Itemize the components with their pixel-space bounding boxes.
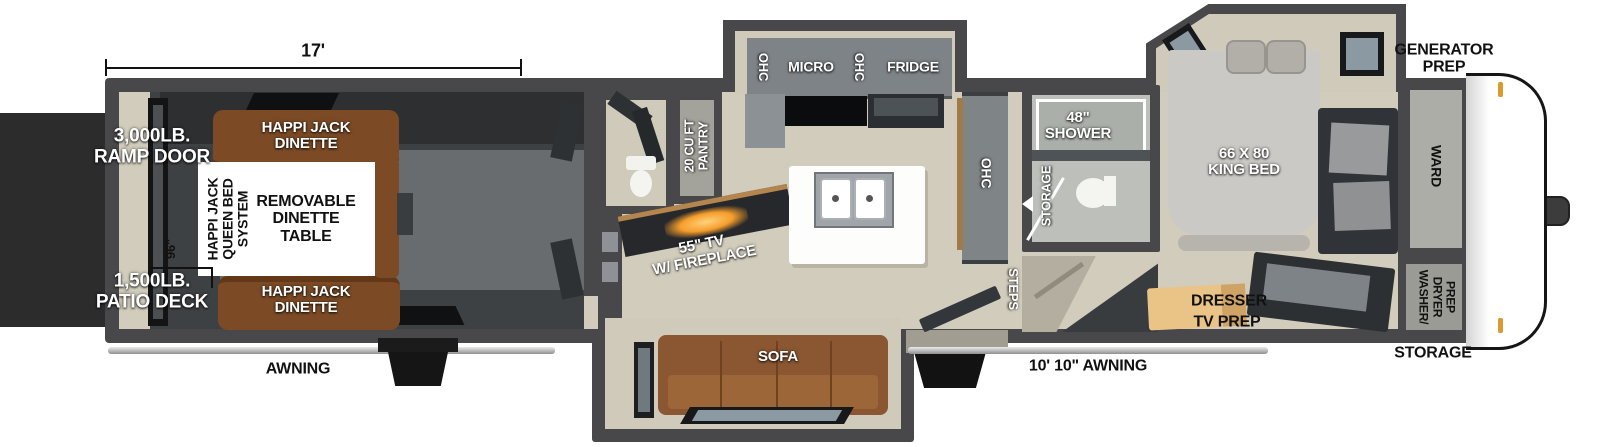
- ward-label: WARD: [1428, 145, 1443, 187]
- bed-pillow-1: [1226, 40, 1266, 74]
- removable-table-label: REMOVABLE DINETTE TABLE: [256, 193, 355, 245]
- sofa-label: SOFA: [758, 349, 798, 365]
- fridge-base: [868, 94, 944, 128]
- awning-main-label: 10' 10" AWNING: [1029, 357, 1147, 374]
- ramp-door-label: 3,000LB. RAMP DOOR: [94, 126, 210, 167]
- sink-bowl-left: [820, 178, 852, 220]
- slide-window-bottom-glass: [692, 410, 842, 421]
- garage-living-wall: [584, 92, 598, 296]
- kitchen-counter-left: [745, 94, 785, 148]
- front-cap: [1466, 73, 1547, 350]
- washer-dryer-label-3: PREP: [1444, 281, 1457, 313]
- stabilizer-bar: [378, 338, 458, 352]
- king-bed: [1168, 50, 1320, 235]
- kitchen-micro-label: MICRO: [788, 59, 834, 74]
- dim-17-label: 17': [301, 41, 325, 60]
- ohc-cabinet-wood-edge: [957, 98, 963, 250]
- kitchen-fridge-label: FRIDGE: [887, 59, 939, 74]
- entry-step-box: [914, 352, 986, 388]
- marker-light-top: [1498, 82, 1503, 97]
- queen-bed-system-label: HAPPI JACK QUEEN BED SYSTEM: [205, 178, 250, 261]
- pantry-label: 20 CU FT PANTRY: [684, 120, 711, 173]
- sink-drain-right: [866, 195, 873, 202]
- dim-96-label: 96": [164, 239, 178, 259]
- washer-dryer-label-2: DRYER: [1431, 277, 1444, 318]
- tv-console-top: [1263, 263, 1371, 311]
- awning-main-bar: [908, 347, 1268, 354]
- toilet-tank: [626, 156, 656, 170]
- garage-roof-vent-top: [246, 93, 339, 110]
- dim-17-tick-left: [105, 59, 107, 76]
- kitchen-ohc-left-label: OHC: [756, 53, 770, 81]
- sofa-seam-1: [720, 341, 722, 407]
- washer-dryer-label-1: WASHER/: [1417, 270, 1430, 325]
- steps-label: STEPS: [1006, 268, 1020, 310]
- dinette-bottom-label: HAPPI JACK DINETTE: [262, 284, 351, 316]
- sofa-seat: [668, 375, 878, 409]
- fifth-wheel-floorplan: 3,000LB. RAMP DOOR 1,500LB. PATIO DECK 1…: [0, 0, 1600, 447]
- sofa-seam-3: [830, 341, 832, 407]
- cooktop: [785, 96, 867, 126]
- side-wall-window-2: [602, 262, 618, 282]
- dim-96-tick: [211, 267, 213, 288]
- bed-pillow-2: [1266, 40, 1306, 74]
- dinette-top-label: HAPPI JACK DINETTE: [262, 120, 351, 152]
- king-bed-label: 66 X 80 KING BED: [1208, 146, 1280, 178]
- generator-prep-label: GENERATOR PREP: [1395, 42, 1494, 77]
- dim-96-line: [150, 267, 213, 269]
- wardrobe-panel-2: [1333, 181, 1391, 231]
- side-wall-window-1: [602, 232, 618, 252]
- toilet-bowl: [630, 170, 652, 197]
- slide-window-bottom: [680, 407, 854, 424]
- storage-front-label: STORAGE: [1394, 344, 1471, 361]
- ohc-wall-label: OHC: [978, 158, 993, 189]
- dresser-label: DRESSER: [1191, 292, 1267, 309]
- bedroom-slide-window-right-glass: [1346, 38, 1378, 70]
- dinette-right-back: [374, 158, 399, 278]
- awning-rear-label: AWNING: [266, 360, 331, 377]
- stabilizer-foot: [388, 352, 448, 386]
- patio-deck-label: 1,500LB. PATIO DECK: [96, 271, 208, 312]
- marker-light-bottom: [1498, 318, 1503, 333]
- shower-toilet-tank: [1104, 176, 1116, 206]
- kitchen-ohc-right-label: OHC: [852, 53, 866, 81]
- bedroom-wardrobe: [1318, 108, 1398, 254]
- bedroom-slide-window-right: [1340, 32, 1384, 76]
- fridge-base-top: [874, 98, 938, 116]
- tv-prep-label: TV PREP: [1193, 313, 1260, 330]
- slide-window-left: [634, 342, 654, 418]
- bath-storage-label: STORAGE: [1040, 166, 1054, 226]
- dim-17-tick-right: [520, 59, 522, 76]
- wardrobe-panel-1: [1329, 123, 1390, 176]
- sink-drain-left: [832, 195, 839, 202]
- shower-vanity: [1032, 150, 1150, 161]
- dim-17-line: [106, 67, 522, 69]
- sink-bowl-right: [854, 178, 886, 220]
- slide-window-left-glass: [638, 348, 650, 412]
- bed-foot-bench: [1178, 235, 1310, 251]
- dinette-right-notch: [397, 193, 413, 235]
- awning-rear-bar: [108, 347, 555, 354]
- shower-label: 48" SHOWER: [1045, 110, 1111, 142]
